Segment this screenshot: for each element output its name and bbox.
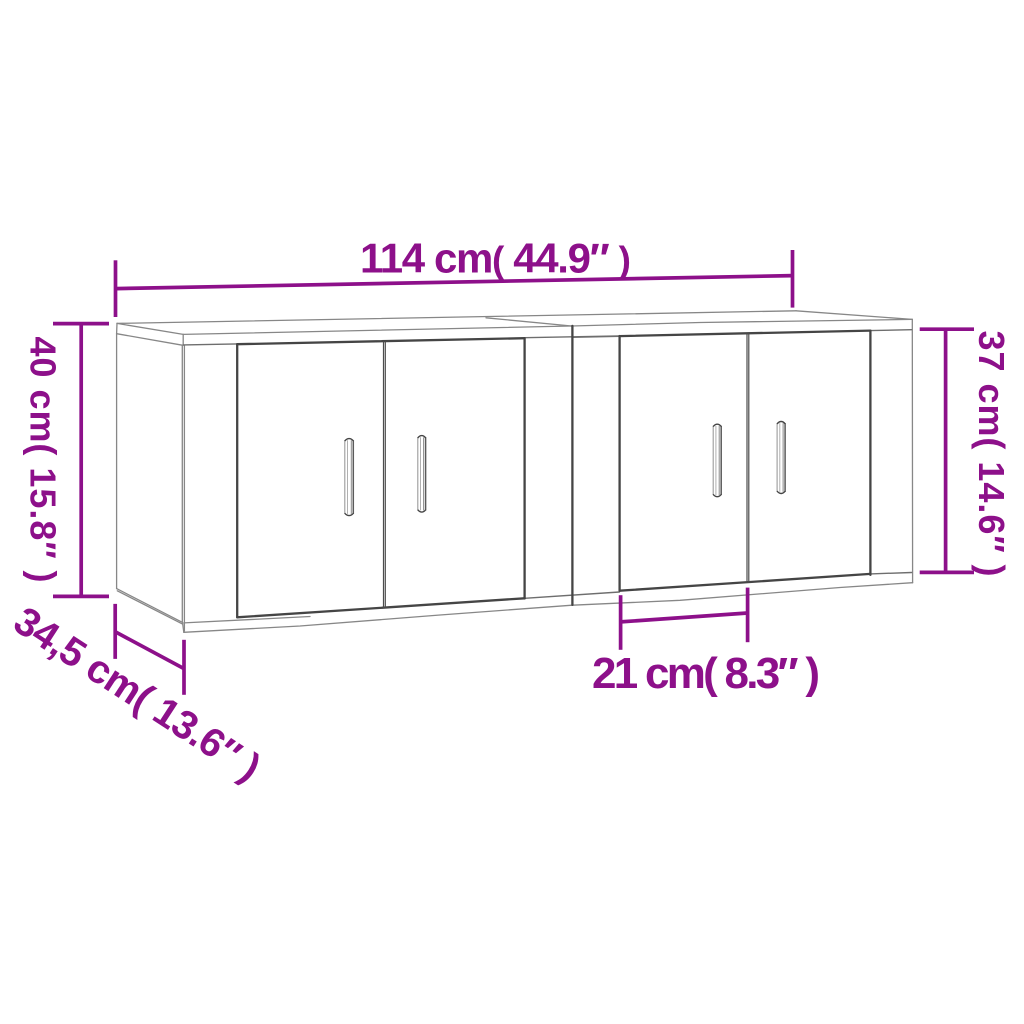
svg-text:114 cm( 44.9″ ): 114 cm( 44.9″ ) [360, 235, 631, 282]
svg-text:21 cm( 8.3″ ): 21 cm( 8.3″ ) [592, 649, 820, 698]
svg-text:37 cm( 14.6″ ): 37 cm( 14.6″ ) [971, 331, 1012, 577]
svg-text:40 cm( 15.8″ ): 40 cm( 15.8″ ) [22, 337, 63, 583]
